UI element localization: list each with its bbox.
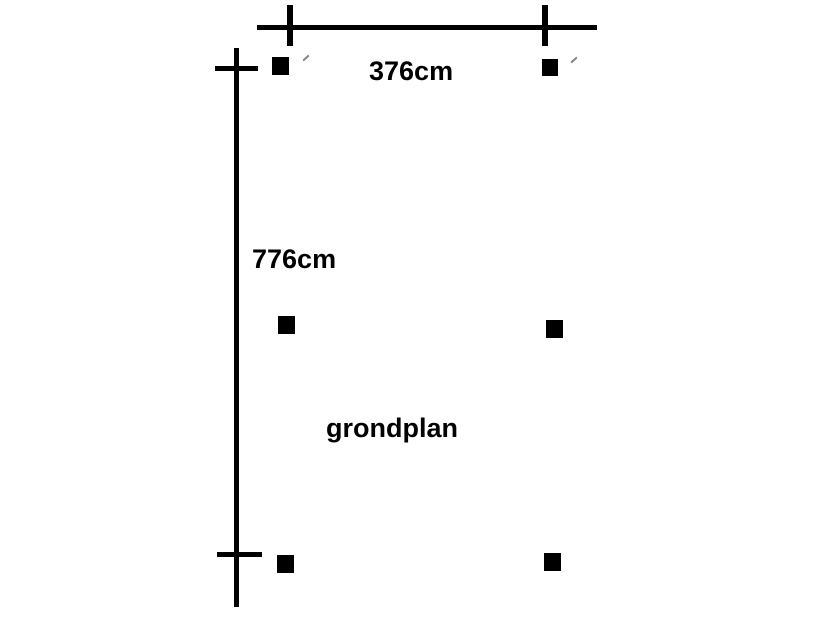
vertical-dimension-line (234, 48, 239, 607)
stray-pen-mark-right (570, 57, 577, 64)
grondplan-drawing: 376cm 776cm grondplan (0, 0, 837, 628)
horizontal-dimension-tick-left (287, 5, 293, 46)
horizontal-dimension-tick-right (542, 5, 548, 46)
vertical-dimension-tick-bottom (217, 552, 262, 557)
width-dimension-label: 376cm (369, 58, 453, 85)
post-marker-top-right (542, 59, 558, 76)
post-marker-middle-right (546, 320, 563, 338)
post-marker-bottom-right (544, 553, 561, 571)
stray-pen-mark-left (302, 55, 309, 62)
height-dimension-label: 776cm (252, 246, 336, 273)
post-marker-top-left (272, 57, 289, 75)
diagram-title: grondplan (326, 415, 458, 442)
post-marker-middle-left (278, 316, 295, 334)
post-marker-bottom-left (277, 555, 294, 573)
vertical-dimension-tick-top (215, 66, 258, 71)
